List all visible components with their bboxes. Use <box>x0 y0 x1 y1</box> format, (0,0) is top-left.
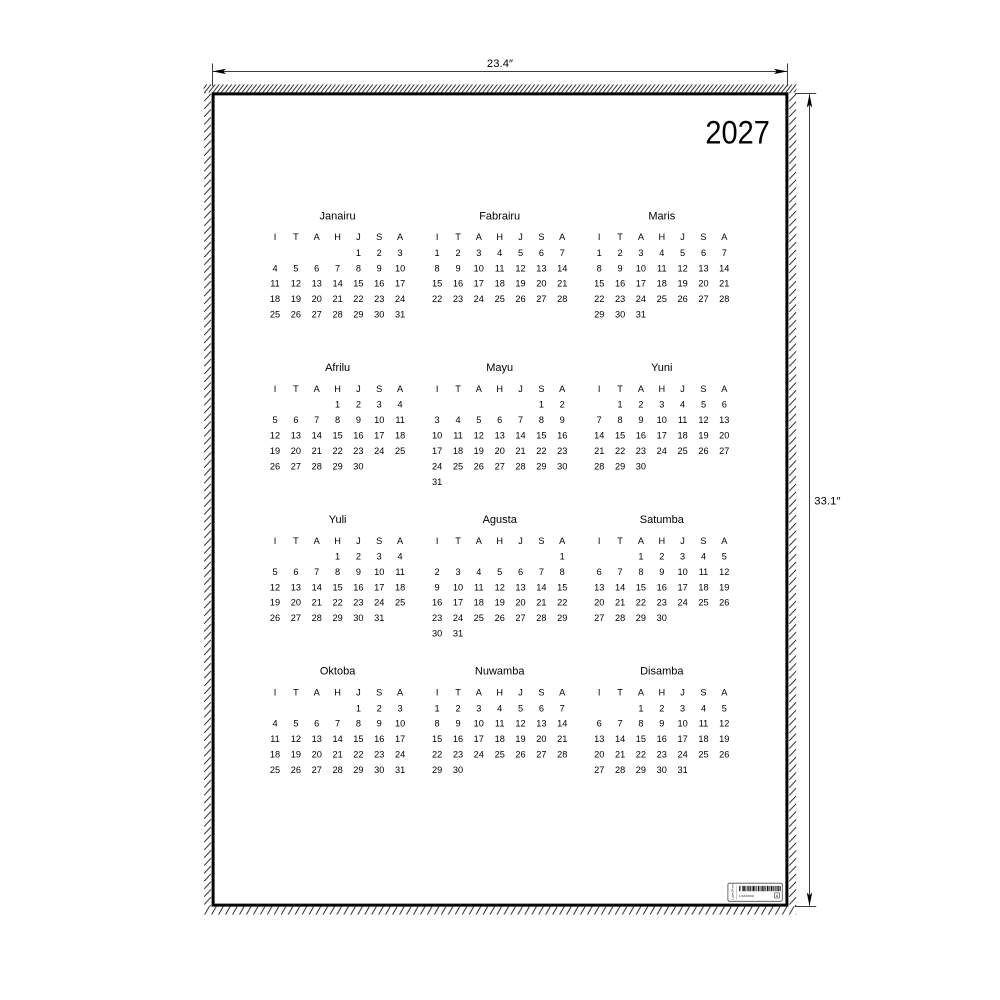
svg-text:3031: 3031 <box>432 629 463 639</box>
svg-text:16171819202122: 16171819202122 <box>432 598 567 608</box>
svg-text:12345: 12345 <box>638 552 727 562</box>
svg-text:45678910: 45678910 <box>272 263 405 273</box>
svg-text:ITAHJSA: ITAHJSA <box>598 688 728 698</box>
svg-text:LSK0000: LSK0000 <box>739 894 754 898</box>
svg-text:21222324252627: 21222324252627 <box>594 446 729 456</box>
svg-text:23242526272829: 23242526272829 <box>432 613 567 623</box>
svg-text:20212223242526: 20212223242526 <box>594 598 729 608</box>
svg-text:20212223242526: 20212223242526 <box>594 750 729 760</box>
svg-text:31: 31 <box>432 477 442 487</box>
svg-text:15161718192021: 15161718192021 <box>594 279 729 289</box>
svg-text:Agusta: Agusta <box>483 514 518 526</box>
svg-text:Mayu: Mayu <box>486 362 513 374</box>
svg-text:15161718192021: 15161718192021 <box>432 734 567 744</box>
svg-text:12: 12 <box>539 400 565 410</box>
svg-text:1234: 1234 <box>335 552 403 562</box>
svg-text:262728293031: 262728293031 <box>270 613 384 623</box>
svg-text:1234567: 1234567 <box>435 248 565 258</box>
svg-text:22232425262728: 22232425262728 <box>432 294 567 304</box>
svg-text:13141516171819: 13141516171819 <box>594 734 729 744</box>
svg-text:ITAHJSA: ITAHJSA <box>436 688 566 698</box>
svg-text:293031: 293031 <box>594 310 646 320</box>
svg-text:ITAHJSA: ITAHJSA <box>274 384 404 394</box>
svg-text:891011121314: 891011121314 <box>435 719 568 729</box>
svg-text:12131415161718: 12131415161718 <box>270 582 405 592</box>
svg-text:25262728293031: 25262728293031 <box>270 310 405 320</box>
svg-text:6789101112: 6789101112 <box>597 719 730 729</box>
svg-text:17181920212223: 17181920212223 <box>432 446 567 456</box>
svg-text:1: 1 <box>560 552 565 562</box>
svg-text:2345678: 2345678 <box>435 567 565 577</box>
svg-text:12345: 12345 <box>638 703 727 713</box>
svg-text:10111213141516: 10111213141516 <box>432 431 567 441</box>
svg-text:24252627282930: 24252627282930 <box>432 461 567 471</box>
svg-text:13141516171819: 13141516171819 <box>594 582 729 592</box>
svg-text:6789101112: 6789101112 <box>597 567 730 577</box>
svg-text:ITAHJSA: ITAHJSA <box>436 232 566 242</box>
svg-text:19202122232425: 19202122232425 <box>270 598 405 608</box>
svg-text:45678910: 45678910 <box>272 719 405 729</box>
svg-text:ITAHJSA: ITAHJSA <box>598 536 728 546</box>
svg-text:18192021222324: 18192021222324 <box>270 294 405 304</box>
svg-text:ITAHJSA: ITAHJSA <box>274 688 404 698</box>
svg-text:25262728293031: 25262728293031 <box>270 765 405 775</box>
svg-text:11121314151617: 11121314151617 <box>270 734 405 744</box>
svg-text:Oktoba: Oktoba <box>320 666 356 678</box>
svg-text:22232425262728: 22232425262728 <box>432 750 567 760</box>
svg-text:123: 123 <box>356 248 403 258</box>
svg-text:891011121314: 891011121314 <box>597 263 730 273</box>
svg-text:567891011: 567891011 <box>272 415 404 425</box>
svg-text:23.4″: 23.4″ <box>487 58 513 70</box>
svg-text:ITAHJSA: ITAHJSA <box>274 232 404 242</box>
svg-text:2728293031: 2728293031 <box>594 765 688 775</box>
svg-text:123456: 123456 <box>618 400 727 410</box>
svg-text:Afrilu: Afrilu <box>325 362 350 374</box>
svg-text:2627282930: 2627282930 <box>270 461 364 471</box>
svg-text:Yuli: Yuli <box>329 514 347 526</box>
svg-text:27282930: 27282930 <box>594 613 667 623</box>
svg-text:123: 123 <box>356 703 403 713</box>
svg-text:Nuwamba: Nuwamba <box>475 666 525 678</box>
svg-text:1234: 1234 <box>335 400 403 410</box>
svg-text:18192021222324: 18192021222324 <box>270 750 405 760</box>
svg-text:2027: 2027 <box>705 114 770 150</box>
svg-text:1234567: 1234567 <box>597 248 727 258</box>
svg-text:567891011: 567891011 <box>272 567 404 577</box>
svg-text:891011121314: 891011121314 <box>435 263 568 273</box>
svg-text:2930: 2930 <box>432 765 463 775</box>
svg-text:Satumba: Satumba <box>640 514 685 526</box>
svg-text:ITAHJSA: ITAHJSA <box>436 384 566 394</box>
svg-text:Janairu: Janairu <box>320 210 356 222</box>
svg-text:282930: 282930 <box>594 461 646 471</box>
svg-text:11121314151617: 11121314151617 <box>270 279 405 289</box>
svg-text:33.1″: 33.1″ <box>814 495 840 507</box>
svg-text:22232425262728: 22232425262728 <box>594 294 729 304</box>
svg-text:19202122232425: 19202122232425 <box>270 446 405 456</box>
svg-text:78910111213: 78910111213 <box>597 415 730 425</box>
svg-text:12131415161718: 12131415161718 <box>270 431 405 441</box>
svg-text:Fabrairu: Fabrairu <box>479 210 520 222</box>
svg-text:Yuni: Yuni <box>651 362 672 374</box>
svg-text:1234567: 1234567 <box>435 703 565 713</box>
svg-text:Maris: Maris <box>648 210 675 222</box>
svg-text:Labe1Pont: Labe1Pont <box>730 884 734 899</box>
svg-text:ITAHJSA: ITAHJSA <box>274 536 404 546</box>
svg-text:14151617181920: 14151617181920 <box>594 431 729 441</box>
svg-text:3456789: 3456789 <box>435 415 565 425</box>
svg-text:ITAHJSA: ITAHJSA <box>598 384 728 394</box>
svg-text:ITAHJSA: ITAHJSA <box>598 232 728 242</box>
svg-text:9101112131415: 9101112131415 <box>435 582 568 592</box>
svg-text:ITAHJSA: ITAHJSA <box>436 536 566 546</box>
svg-text:15161718192021: 15161718192021 <box>432 279 567 289</box>
svg-text:Disamba: Disamba <box>640 666 684 678</box>
